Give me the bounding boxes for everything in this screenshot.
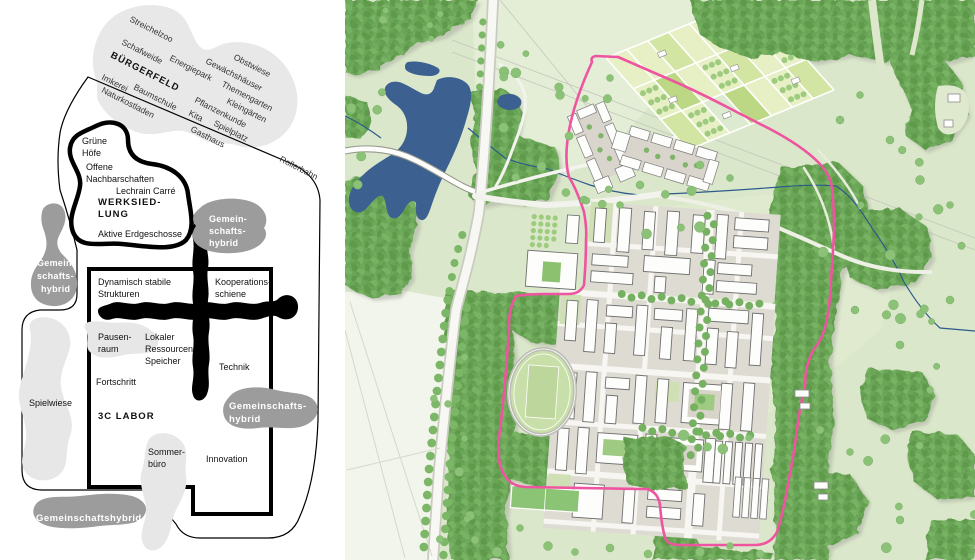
svg-text:schafts-: schafts- [209, 226, 246, 236]
svg-text:Speicher: Speicher [145, 356, 181, 366]
svg-text:Technik: Technik [219, 362, 250, 372]
svg-text:hybrid: hybrid [229, 414, 261, 425]
svg-text:Gemeinschafts-: Gemeinschafts- [229, 401, 307, 412]
svg-text:Ressourcen: Ressourcen [145, 344, 193, 354]
svg-text:Fortschritt: Fortschritt [96, 377, 137, 387]
svg-text:Offene: Offene [86, 162, 113, 172]
svg-text:hybrid: hybrid [209, 238, 238, 248]
svg-text:Strukturen: Strukturen [98, 289, 140, 299]
svg-text:Höfe: Höfe [82, 148, 101, 158]
svg-text:Sommer-: Sommer- [148, 447, 185, 457]
svg-text:Kooperations-: Kooperations- [215, 277, 271, 287]
svg-text:Nachbarschaften: Nachbarschaften [86, 174, 154, 184]
svg-text:büro: büro [148, 459, 166, 469]
svg-text:Rollerbahn: Rollerbahn [278, 154, 320, 182]
svg-text:Gemein-: Gemein- [209, 214, 247, 224]
svg-text:LUNG: LUNG [98, 209, 129, 220]
svg-text:Grüne: Grüne [82, 136, 107, 146]
svg-text:WERKSIED-: WERKSIED- [98, 197, 161, 208]
svg-text:3C LABOR: 3C LABOR [98, 411, 155, 422]
svg-text:Gemeinschaftshybrid: Gemeinschaftshybrid [36, 513, 142, 524]
svg-text:raum: raum [98, 344, 119, 354]
svg-text:Dynamisch stabile: Dynamisch stabile [98, 277, 171, 287]
svg-text:Gemein-: Gemein- [37, 258, 75, 268]
svg-text:Spielwiese: Spielwiese [29, 398, 72, 408]
svg-text:Lechrain Carré: Lechrain Carré [116, 186, 176, 196]
svg-text:schafts-: schafts- [37, 271, 74, 281]
svg-text:hybrid: hybrid [41, 284, 70, 294]
svg-text:Innovation: Innovation [206, 454, 248, 464]
svg-text:Lokaler: Lokaler [145, 332, 175, 342]
svg-text:schiene: schiene [215, 289, 246, 299]
svg-text:Aktive Erdgeschosse: Aktive Erdgeschosse [98, 229, 182, 239]
svg-text:Pausen-: Pausen- [98, 332, 132, 342]
